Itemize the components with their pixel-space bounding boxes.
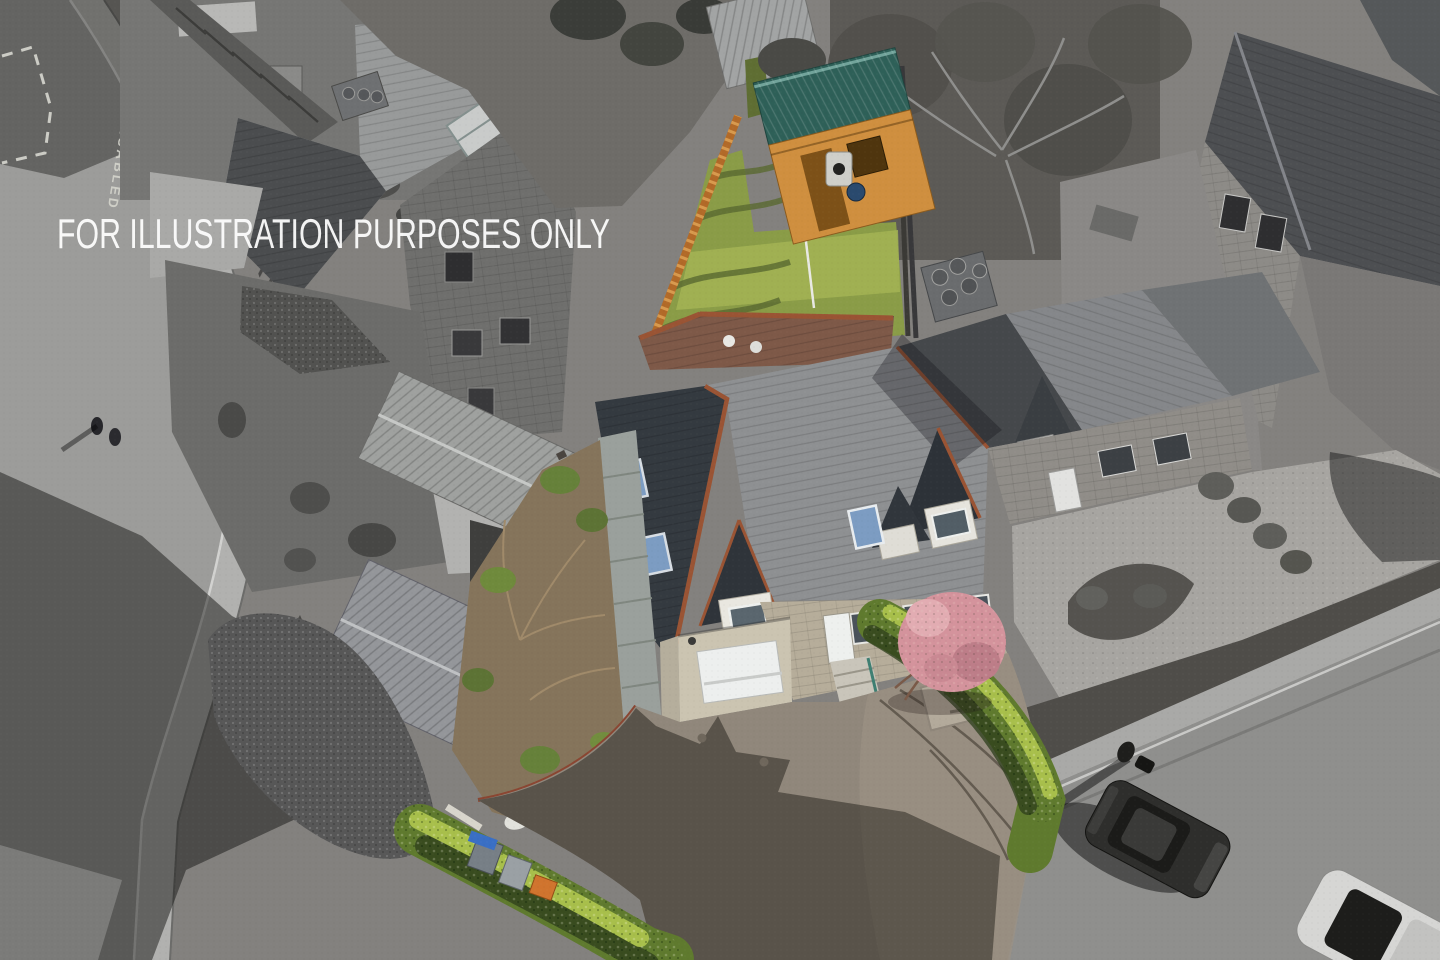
aerial-photo-canvas: DISABLED xyxy=(0,0,1440,960)
photo-grain xyxy=(0,0,1440,960)
aerial-photo: DISABLED xyxy=(0,0,1440,960)
watermark-text: FOR ILLUSTRATION PURPOSES ONLY xyxy=(57,210,610,257)
